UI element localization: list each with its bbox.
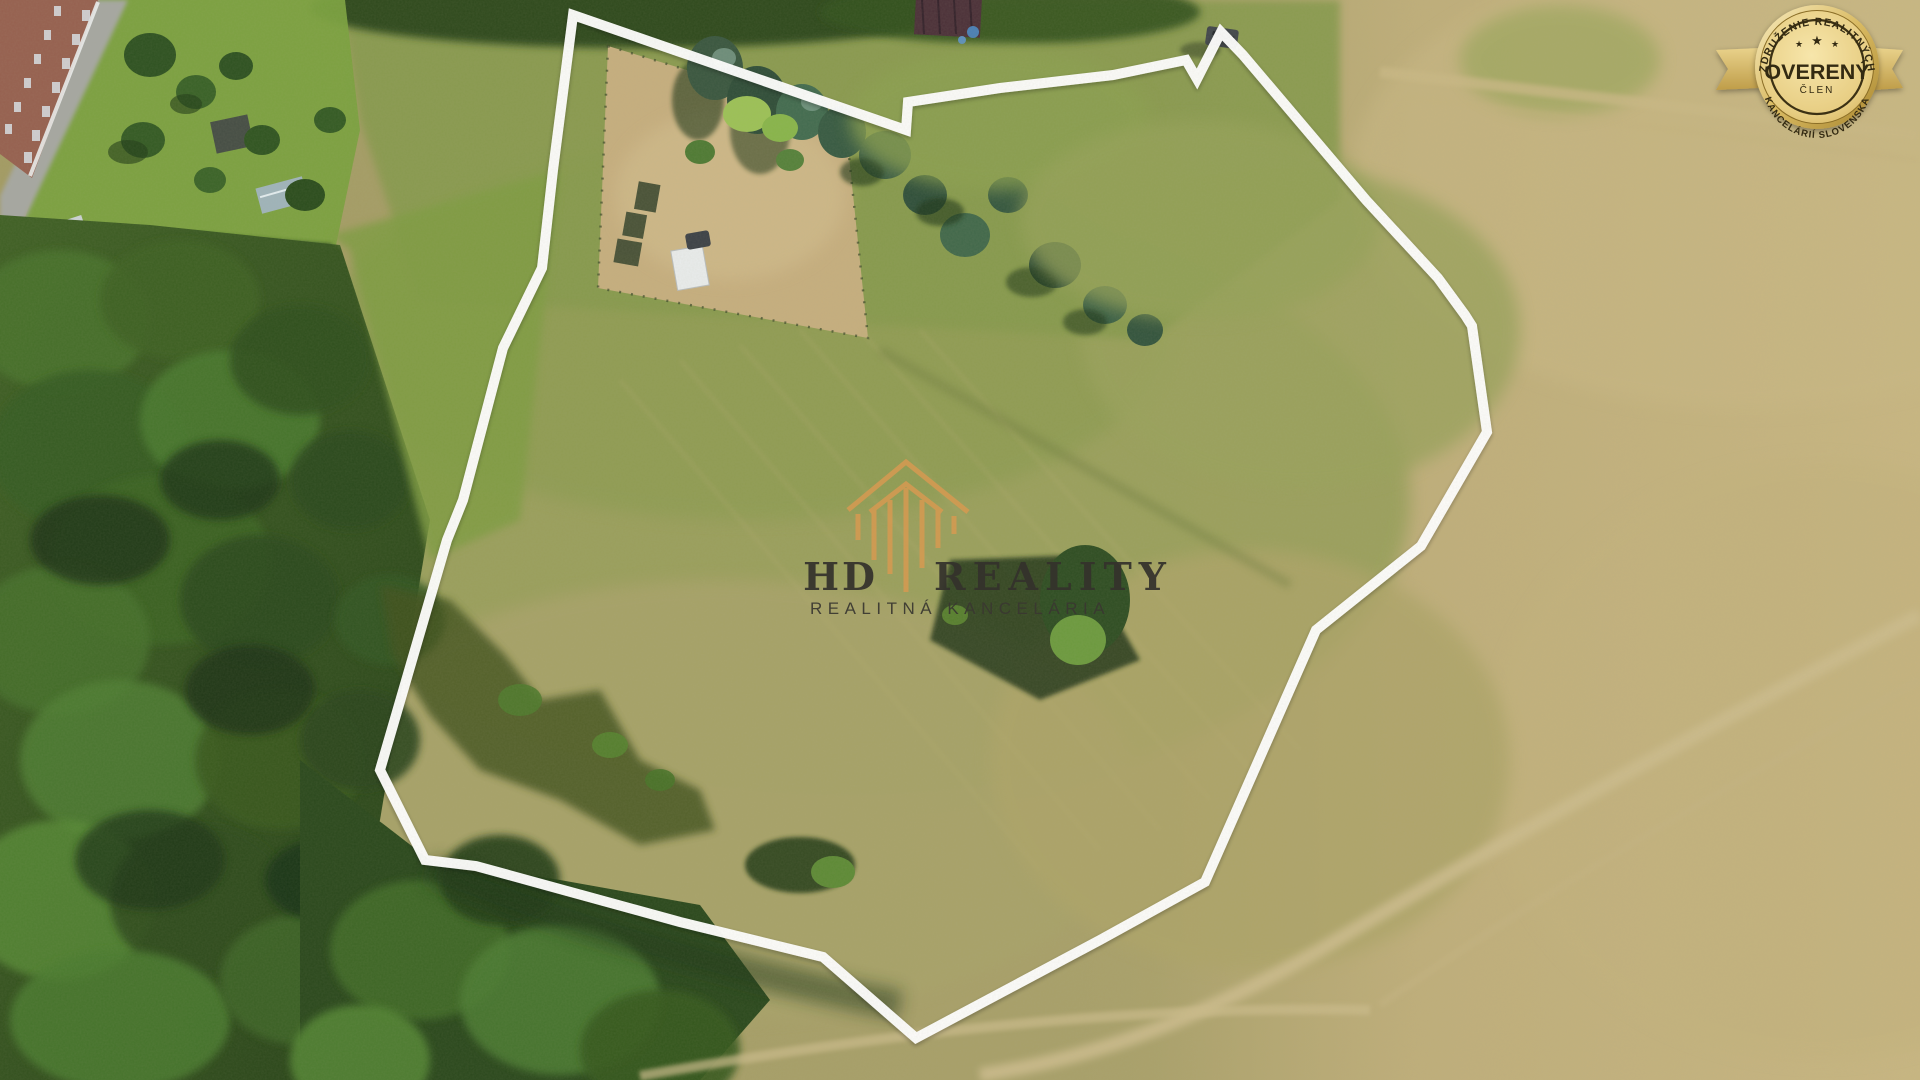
badge-medal: ZDRUŽENIE REALITNÝCH ★ ★ ★ OVERENÝ ČLEN …	[1755, 5, 1879, 141]
badge-star-center: ★	[1811, 33, 1823, 48]
badge-star-left: ★	[1795, 39, 1803, 49]
badge-subtitle: ČLEN	[1800, 83, 1835, 96]
badge-star-right: ★	[1831, 39, 1839, 49]
photo-grain	[0, 0, 1920, 1080]
listing-photo: HD REALITY REALITNÁ KANCELÁRIA	[0, 0, 1920, 1080]
verified-member-badge: ZDRUŽENIE REALITNÝCH ★ ★ ★ OVERENÝ ČLEN …	[1690, 0, 1920, 150]
badge-title: OVERENÝ	[1764, 59, 1869, 84]
aerial-photo	[0, 0, 1920, 1080]
